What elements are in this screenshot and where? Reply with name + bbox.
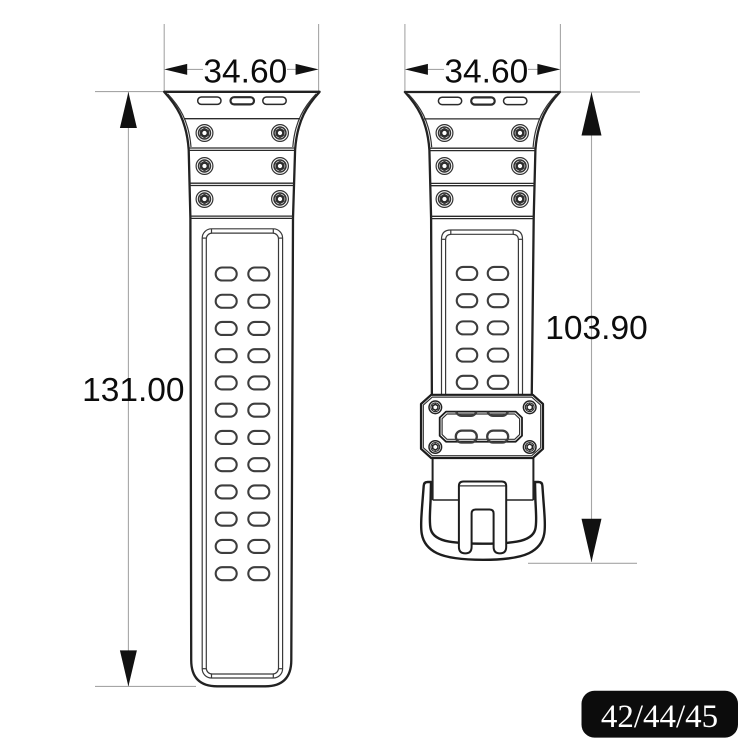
svg-text:42/44/45: 42/44/45 (601, 699, 718, 735)
svg-text:34.60: 34.60 (203, 53, 287, 90)
svg-text:131.00: 131.00 (82, 372, 184, 409)
svg-text:103.90: 103.90 (545, 310, 647, 347)
svg-text:34.60: 34.60 (444, 53, 528, 90)
